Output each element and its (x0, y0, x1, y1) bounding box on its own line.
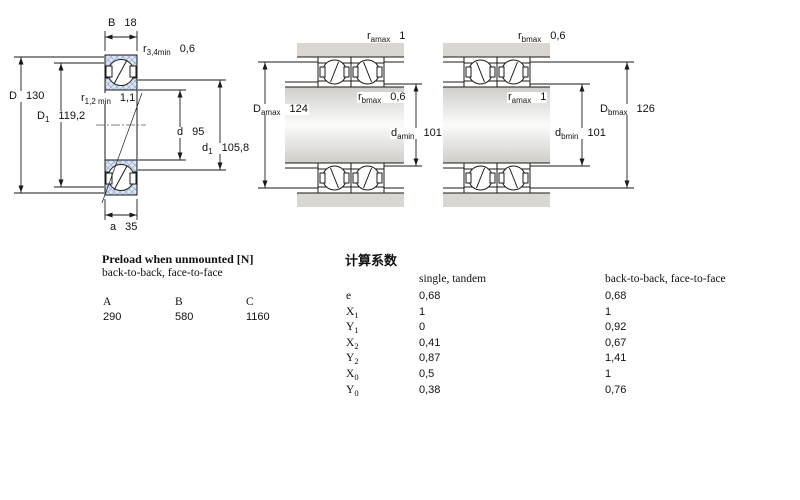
dim-label-B: B18 (107, 18, 138, 29)
calculation-factors-table: 计算系数 single, tandem back-to-back, face-t… (345, 250, 800, 410)
factors-row-x0: X0 0,5 1 (345, 368, 800, 383)
dim-subscript: amax (371, 35, 391, 44)
housing-bottom (443, 193, 550, 207)
factor-value-single: 0,5 (419, 368, 434, 380)
dim-value: 0,6 (390, 91, 405, 103)
preload-value-b: 580 (175, 311, 193, 323)
factor-symbol-sub: 0 (354, 388, 358, 398)
dim-value: 0,6 (180, 43, 195, 55)
dim-label-r12: r1,2 min1,1 (80, 93, 136, 104)
left-bearing-cross-section (96, 55, 146, 203)
arrangement-figure-b (443, 43, 634, 207)
factor-symbol: X0 (346, 368, 359, 380)
housing-top (297, 43, 404, 57)
dim-symbol: D (37, 110, 45, 122)
factor-symbol-main: e (346, 290, 351, 302)
dim-value: 0,6 (550, 30, 565, 42)
dim-subscript: amax (261, 108, 281, 117)
factor-value-paired: 0,67 (605, 337, 626, 349)
factor-value-single: 0,87 (419, 352, 440, 364)
dim-subscript: 1 (45, 115, 49, 124)
factor-value-single: 0,38 (419, 384, 440, 396)
factor-symbol: X2 (346, 337, 359, 349)
dim-label-D1: D1119,2 (36, 111, 86, 122)
factor-symbol: Y1 (346, 321, 359, 333)
dim-value: 95 (192, 126, 204, 138)
factor-value-paired: 1 (605, 306, 611, 318)
housing-bottom (297, 193, 404, 207)
dim-value: 126 (637, 103, 655, 115)
dim-value: 18 (124, 17, 136, 29)
dim-value: 130 (26, 90, 44, 102)
dim-label-ramax: ramax1 (507, 92, 547, 103)
cage-top-right (130, 66, 136, 77)
preload-value-a: 290 (103, 311, 121, 323)
dim-label-rbmax-top: rbmax0,6 (517, 31, 567, 42)
factors-row-x1: X1 1 1 (345, 306, 800, 321)
factor-value-single: 0 (419, 321, 425, 333)
dim-subscript: 3,4min (147, 48, 171, 57)
dim-value: 119,2 (58, 110, 85, 122)
factor-value-paired: 0,92 (605, 321, 626, 333)
preload-subtitle: back-to-back, face-to-face (102, 267, 223, 279)
dim-symbol: D (253, 103, 261, 115)
dim-subscript: bmin (561, 132, 578, 141)
factor-value-paired: 1 (605, 368, 611, 380)
dim-label-r34: r3,4min0,6 (142, 44, 196, 55)
dim-label-d1: d1105,8 (201, 143, 250, 154)
factors-row-y1: Y1 0 0,92 (345, 321, 800, 336)
dim-label-Dbmax: Dbmax126 (599, 104, 656, 115)
factor-value-paired: 0,68 (605, 290, 626, 302)
preload-value-c: 1160 (246, 311, 270, 323)
factor-symbol-sub: 2 (354, 356, 358, 366)
dim-symbol: d (177, 126, 183, 138)
factor-symbol: Y2 (346, 352, 359, 364)
factor-symbol-sub: 0 (354, 372, 358, 382)
dim-value: 124 (290, 103, 308, 115)
dim-label-damin: damin101 (390, 128, 443, 139)
factors-row-e: e 0,68 0,68 (345, 290, 800, 305)
factors-row-y0: Y0 0,38 0,76 (345, 384, 800, 399)
dim-value: 35 (125, 221, 137, 233)
preload-table: Preload when unmounted [N] back-to-back,… (102, 252, 342, 332)
dim-subscript: bmax (362, 96, 382, 105)
bearing-pair-top (464, 57, 530, 87)
dim-value: 1 (399, 30, 405, 42)
bearing-pair-top (318, 57, 384, 87)
dim-subscript: amin (397, 132, 414, 141)
dim-value: 1 (540, 91, 546, 103)
factors-col2-header: back-to-back, face-to-face (605, 273, 726, 285)
factor-value-single: 1 (419, 306, 425, 318)
dim-label-a: a35 (109, 222, 138, 233)
factors-col1-header: single, tandem (419, 273, 486, 285)
cage-top-left (106, 66, 112, 77)
dim-label-ramax-top: ramax1 (366, 31, 406, 42)
dim-subscript: amax (512, 96, 532, 105)
bearing-datasheet-page: B18 r3,4min0,6 D130 D1119,2 r1,2 min1,1 … (0, 0, 800, 500)
preload-title: Preload when unmounted [N] (102, 252, 253, 267)
factor-value-single: 0,68 (419, 290, 440, 302)
factor-symbol-sub: 2 (354, 341, 358, 351)
bearing-pair-bottom (464, 163, 530, 193)
bearing-pair-bottom (318, 163, 384, 193)
factors-row-y2: Y2 0,87 1,41 (345, 352, 800, 367)
dim-symbol: D (9, 90, 17, 102)
housing-top (443, 43, 550, 57)
factor-symbol: X1 (346, 306, 359, 318)
dim-subscript: bmax (608, 108, 628, 117)
dim-subscript: 1 (208, 147, 212, 156)
factor-symbol: e (346, 290, 351, 302)
dim-subscript: bmax (522, 35, 542, 44)
preload-col-a: A (103, 296, 111, 308)
factors-row-x2: X2 0,41 0,67 (345, 337, 800, 352)
factor-symbol-sub: 1 (354, 325, 358, 335)
factor-value-paired: 1,41 (605, 352, 626, 364)
dim-subscript: 1,2 min (85, 97, 111, 106)
arrangement-figure-a (258, 43, 422, 207)
dim-symbol: D (600, 103, 608, 115)
dim-label-Damax: Damax124 (252, 104, 309, 115)
dim-label-rbmax: rbmax0,6 (357, 92, 407, 103)
preload-col-c: C (246, 296, 254, 308)
dim-value: 101 (587, 127, 605, 139)
factors-title: 计算系数 (345, 250, 397, 269)
dim-value: 105,8 (222, 142, 250, 154)
dim-label-D: D130 (8, 91, 45, 102)
factor-value-single: 0,41 (419, 337, 440, 349)
dim-value: 101 (423, 127, 441, 139)
dim-label-d: d95 (176, 127, 205, 138)
dim-symbol: a (110, 221, 116, 233)
preload-col-b: B (175, 296, 183, 308)
dim-symbol: B (108, 17, 115, 29)
factor-value-paired: 0,76 (605, 384, 626, 396)
factor-symbol-sub: 1 (354, 310, 358, 320)
factor-symbol: Y0 (346, 384, 359, 396)
dim-value: 1,1 (120, 92, 135, 104)
cage-bottom-right (130, 173, 136, 184)
dim-label-dbmin: dbmin101 (554, 128, 607, 139)
